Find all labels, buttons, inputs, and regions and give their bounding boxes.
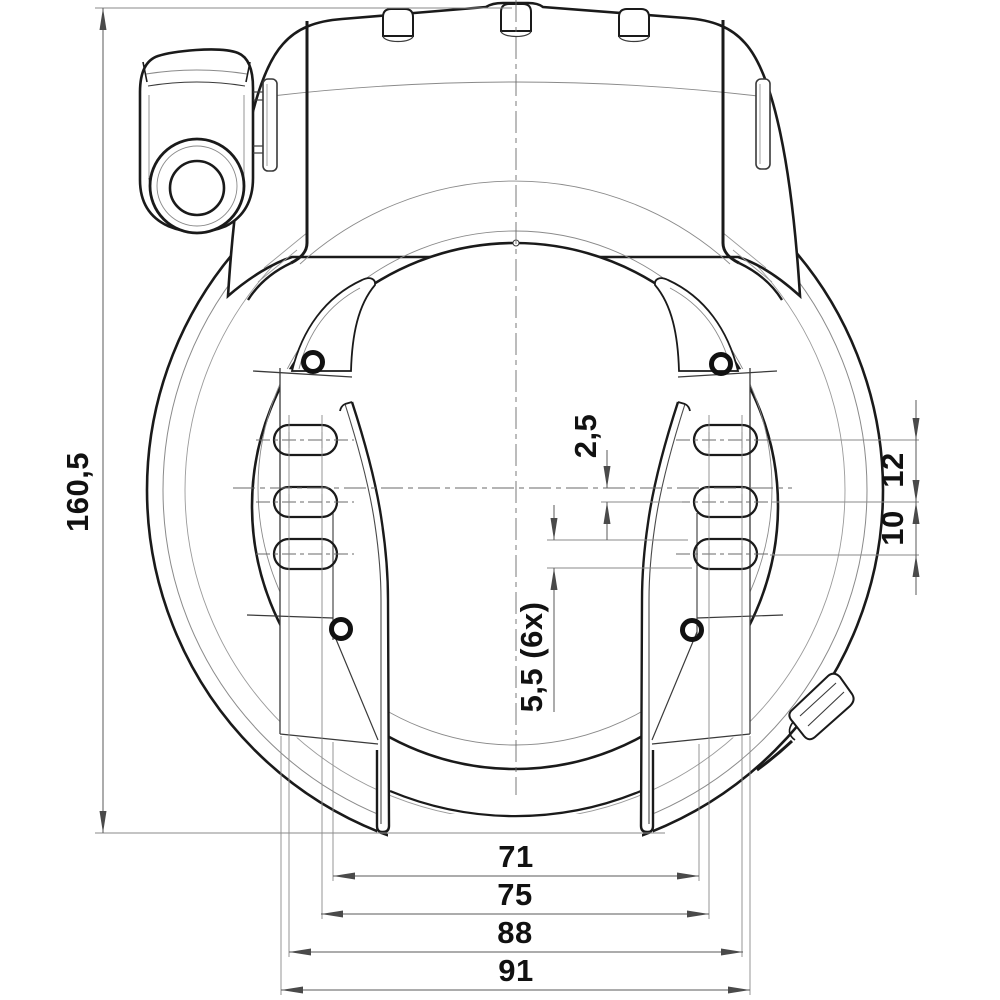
dim-label-slot-offset: 2,5 bbox=[568, 414, 603, 459]
dim-label-width-91: 91 bbox=[498, 953, 533, 988]
dim-label-row-gap-upper: 12 bbox=[875, 452, 910, 487]
key-bore bbox=[170, 161, 224, 215]
dim-label-row-gap-lower: 10 bbox=[875, 510, 910, 545]
housing-right-mount-tab bbox=[756, 79, 770, 169]
dim-label-overall-height: 160,5 bbox=[60, 452, 95, 532]
technical-drawing: 160,5 2,5 12 10 5,5 (6x) 71 75 88 91 bbox=[0, 0, 1000, 1000]
dim-label-width-88: 88 bbox=[497, 915, 532, 950]
dim-label-width-71: 71 bbox=[498, 839, 533, 874]
drawing-canvas: 160,5 2,5 12 10 5,5 (6x) 71 75 88 91 bbox=[0, 0, 1000, 1000]
dim-label-slot-width: 5,5 (6x) bbox=[514, 602, 549, 713]
dim-label-width-75: 75 bbox=[497, 877, 532, 912]
